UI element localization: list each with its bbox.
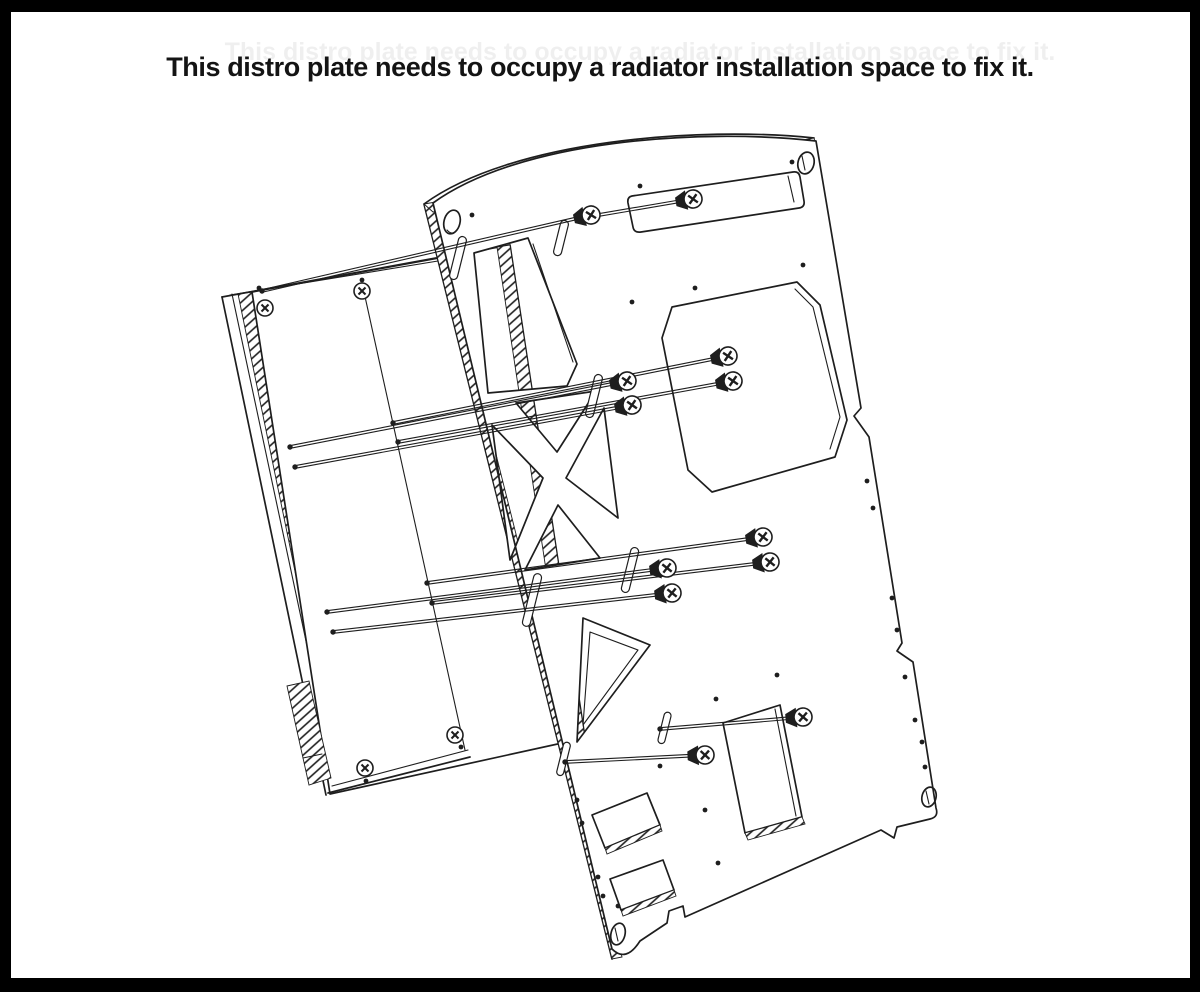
screw-tip <box>287 444 292 449</box>
screw-head <box>710 345 739 368</box>
screw-tip <box>330 629 335 634</box>
screw-tip <box>424 580 429 585</box>
screw-tip <box>292 464 297 469</box>
screw-head <box>715 371 744 393</box>
screw-tip <box>395 439 400 444</box>
technical-drawing <box>0 0 1200 992</box>
screw-tip <box>562 759 567 764</box>
screw-tick <box>364 779 369 784</box>
screw-tick <box>459 745 464 750</box>
page-background: This distro plate needs to occupy a radi… <box>0 0 1200 992</box>
screw-tip <box>429 600 434 605</box>
page-title: This distro plate needs to occupy a radi… <box>0 52 1200 83</box>
screw-tick <box>257 286 262 291</box>
screw-tick <box>360 278 365 283</box>
screw-tip <box>324 609 329 614</box>
screw-tip <box>657 726 662 731</box>
